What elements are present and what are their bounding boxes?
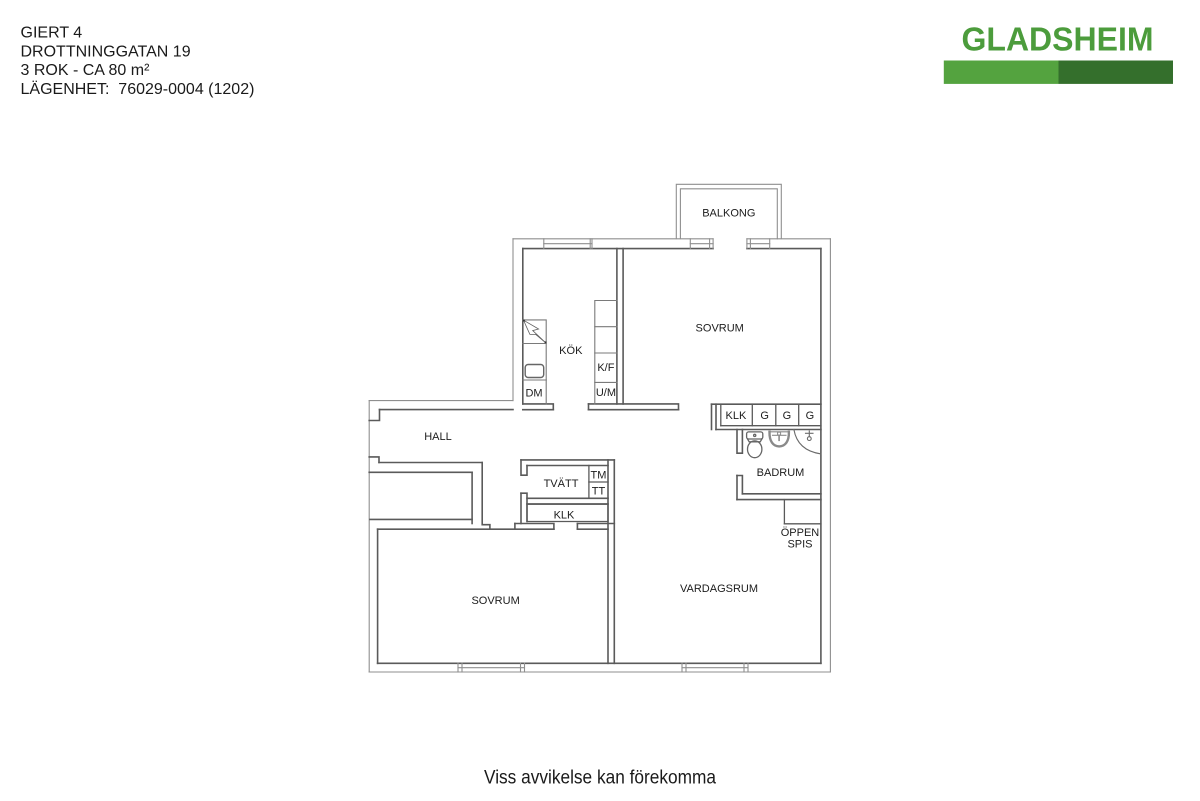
svg-text:DROTTNINGGATAN 19: DROTTNINGGATAN 19: [21, 43, 191, 60]
svg-text:GLADSHEIM: GLADSHEIM: [962, 20, 1154, 57]
svg-text:KÖK: KÖK: [559, 345, 583, 357]
svg-text:3 ROK - CA 80 m²: 3 ROK - CA 80 m²: [21, 62, 151, 79]
svg-text:HALL: HALL: [424, 431, 452, 443]
svg-text:Viss avvikelse kan förekomma: Viss avvikelse kan förekomma: [484, 768, 716, 789]
svg-text:U/M: U/M: [596, 387, 616, 399]
svg-text:SPIS: SPIS: [787, 539, 812, 551]
svg-text:ÖPPEN: ÖPPEN: [781, 527, 820, 539]
svg-text:GIERT 4: GIERT 4: [21, 25, 83, 42]
svg-text:BADRUM: BADRUM: [757, 467, 805, 479]
svg-text:TVÄTT: TVÄTT: [544, 478, 579, 490]
svg-text:G: G: [806, 410, 815, 422]
svg-text:KLK: KLK: [554, 510, 575, 522]
svg-text:BALKONG: BALKONG: [702, 208, 755, 220]
svg-text:G: G: [760, 410, 769, 422]
svg-text:TM: TM: [591, 469, 607, 481]
svg-text:KLK: KLK: [726, 410, 747, 422]
svg-text:SOVRUM: SOVRUM: [471, 595, 519, 607]
svg-text:G: G: [783, 410, 792, 422]
svg-text:DM: DM: [525, 388, 542, 400]
svg-text:SOVRUM: SOVRUM: [696, 322, 744, 334]
svg-text:LÄGENHET: 76029-0004 (1202): LÄGENHET: 76029-0004 (1202): [21, 80, 255, 98]
svg-text:K/F: K/F: [597, 362, 614, 374]
svg-text:VARDAGSRUM: VARDAGSRUM: [680, 583, 758, 595]
svg-text:TT: TT: [592, 485, 606, 497]
